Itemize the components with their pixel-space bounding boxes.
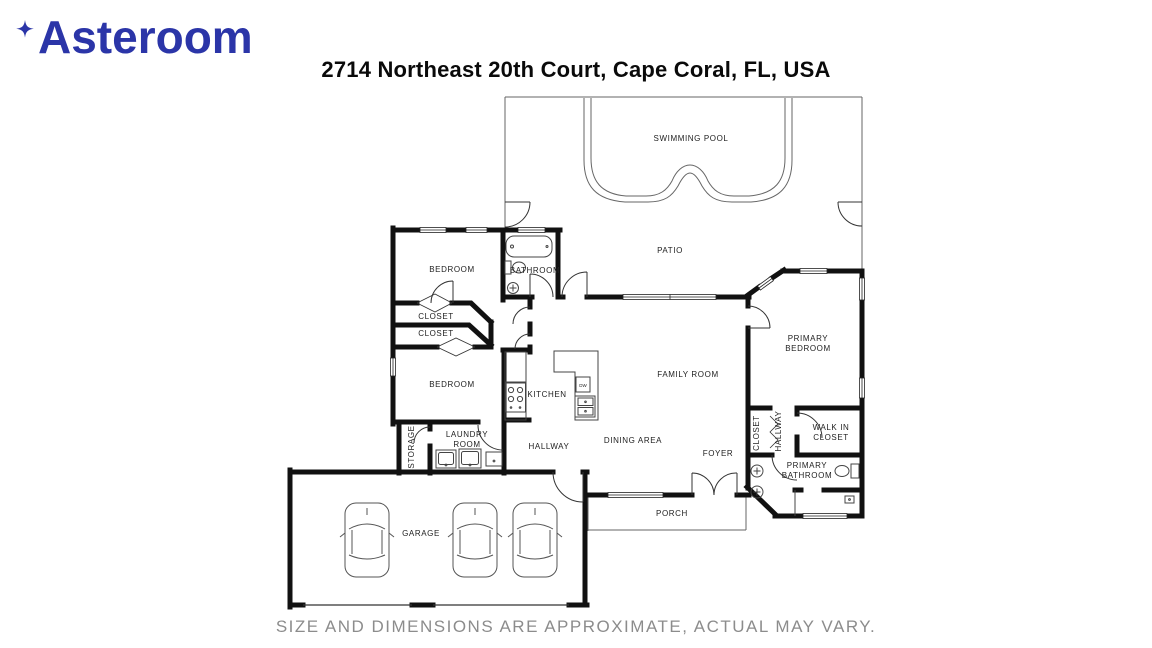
room-label-storage: STORAGE — [407, 425, 416, 468]
utility-sink-icon — [486, 452, 502, 466]
room-label-family-room: FAMILY ROOM — [657, 370, 718, 379]
room-label-porch: PORCH — [656, 509, 688, 518]
swimming-pool-outline — [584, 98, 792, 202]
room-label-closet-1: CLOSET — [418, 312, 454, 321]
room-label-bedroom-1: BEDROOM — [429, 265, 475, 274]
shower-icon — [845, 496, 854, 503]
room-label-walkin-line2: CLOSET — [813, 433, 849, 442]
room-label-closet-2: CLOSET — [418, 329, 454, 338]
kitchen-counter — [505, 352, 526, 420]
kitchen-island — [554, 351, 598, 420]
room-label-garage: GARAGE — [402, 529, 440, 538]
dishwasher-label: DW — [579, 383, 587, 388]
room-label-primary-bedroom-line2: BEDROOM — [785, 344, 831, 353]
disclaimer-text: SIZE AND DIMENSIONS ARE APPROXIMATE, ACT… — [0, 617, 1152, 637]
toilet-icon-primary — [835, 464, 859, 478]
car-icon — [340, 503, 394, 577]
room-label-foyer: FOYER — [703, 449, 734, 458]
sink-icon — [508, 283, 519, 294]
room-label-dining-area: DINING AREA — [604, 436, 662, 445]
room-label-bathroom: BATHROOM — [510, 266, 560, 275]
room-label-laundry-line2: ROOM — [453, 440, 480, 449]
room-label-swimming-pool: SWIMMING POOL — [654, 134, 729, 143]
room-label-bedroom-2: BEDROOM — [429, 380, 475, 389]
car-icon — [448, 503, 502, 577]
washer-icon — [436, 450, 456, 468]
room-label-primary-bath-line2: BATHROOM — [782, 471, 832, 480]
room-label-laundry-line1: LAUNDRY — [446, 430, 488, 439]
room-label-patio: PATIO — [657, 246, 683, 255]
bathtub-icon — [506, 236, 552, 257]
floor-plan: SWIMMING POOL PATIO BEDROOM BATHROOM CLO… — [0, 0, 1152, 648]
room-label-hallway: HALLWAY — [529, 442, 570, 451]
car-icon — [508, 503, 562, 577]
room-label-foyer-closet: CLOSET — [752, 415, 761, 451]
room-label-primary-bedroom-line1: PRIMARY — [788, 334, 829, 343]
room-label-kitchen: KITCHEN — [527, 390, 566, 399]
floorplan-page: Asteroom 2714 Northeast 20th Court, Cape… — [0, 0, 1152, 648]
room-label-walkin-line1: WALK IN — [813, 423, 850, 432]
dryer-icon — [459, 449, 481, 468]
room-label-hallway-2: HALLWAY — [774, 410, 783, 451]
room-label-primary-bath-line1: PRIMARY — [787, 461, 828, 470]
stove-icon — [506, 383, 526, 412]
